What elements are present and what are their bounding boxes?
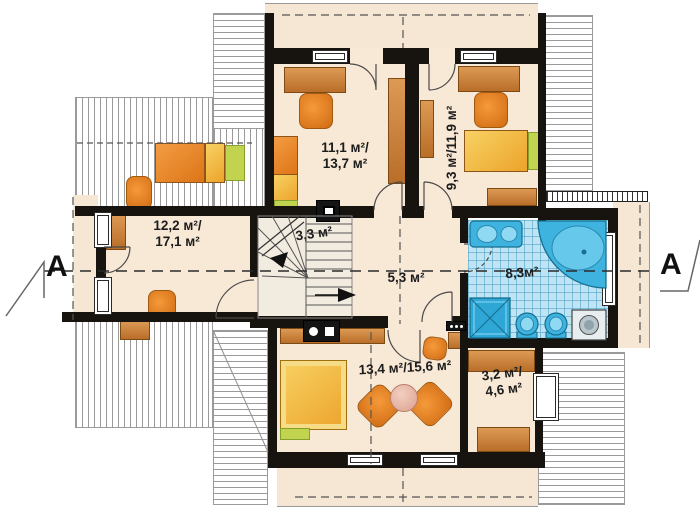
shower (470, 298, 510, 338)
bidet (545, 313, 567, 338)
section-marker-left: A (46, 250, 68, 284)
area-value: 4,6 м² (485, 380, 524, 399)
area-value: 11,1 м²/ (321, 140, 369, 155)
room-label-left: 12,2 м²/ 17,1 м² (130, 218, 225, 251)
linework-overlay (0, 0, 700, 519)
area-value: 12,2 м²/ (153, 218, 201, 233)
section-marker-right: A (660, 248, 682, 282)
area-value: 5,3 м² (388, 270, 425, 285)
toilet (516, 313, 538, 338)
area-value: 13,7 м² (323, 156, 368, 171)
area-value: 9,3 м²/11,9 м² (444, 106, 459, 191)
area-value: 8,3м² (505, 264, 539, 281)
floor-plan-canvas: 11,1 м²/ 13,7 м² 9,3 м²/11,9 м² 12,2 м²/… (0, 0, 700, 519)
room-label-upper-right: 9,3 м²/11,9 м² (444, 96, 464, 200)
room-label-upper-left: 11,1 м²/ 13,7 м² (300, 140, 390, 173)
roof-valley-line (213, 330, 268, 452)
double-sink (470, 221, 522, 247)
washing-machine (572, 310, 606, 340)
room-label-hall: 5,3 м² (380, 270, 432, 286)
area-value: 17,1 м² (155, 234, 200, 249)
door-swings (104, 64, 492, 362)
